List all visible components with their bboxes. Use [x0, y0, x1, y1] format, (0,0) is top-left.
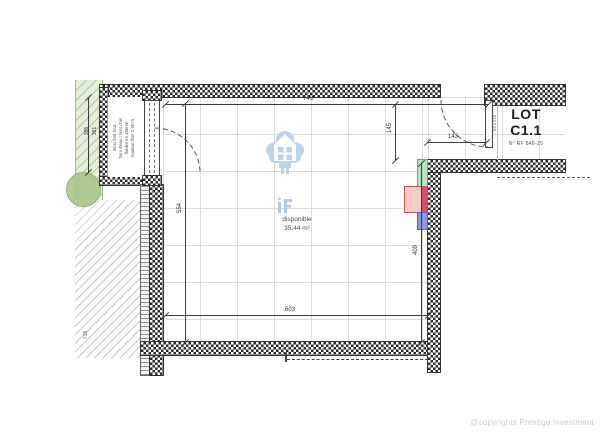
lot-title-line2: C1.1	[497, 122, 555, 138]
brand-monogram-icon	[276, 197, 294, 217]
wall-annex-left	[100, 88, 108, 185]
boundary-tick	[285, 352, 287, 362]
dim-line-door-opening	[427, 142, 486, 143]
annex-door-swing-arc	[152, 125, 207, 177]
dim-outer-left-b: 361	[92, 116, 98, 146]
lot-jamb-line	[497, 105, 498, 160]
lot-label-block: LOT C1.1 N° RF 848-25	[497, 106, 555, 147]
lot-boundary-dashed-line	[497, 177, 590, 178]
dim-line-entry-recess	[395, 104, 396, 160]
dim-line-bottom	[165, 315, 428, 316]
floor-plan-canvas: local livré brut hors d'eau / hors d'air…	[0, 0, 600, 433]
annex-door-jamb-top	[143, 91, 161, 100]
annex-note-line: hauteur libre 2,60 m	[130, 106, 136, 171]
annex-note: local livré brut hors d'eau / hors d'air…	[113, 106, 142, 171]
copyright-watermark: @copyrights Prestige Investment	[470, 418, 594, 427]
house-logo-watermark-icon	[265, 130, 305, 176]
lot-reference: N° RF 848-25	[497, 141, 555, 147]
dim-entry-recess: 145	[387, 118, 393, 138]
bush-symbol	[66, 172, 101, 207]
wall-bottom	[141, 342, 440, 355]
dim-door-opening: 143	[438, 134, 468, 140]
wall-entry-bottom	[428, 160, 565, 172]
door-panel-line	[149, 103, 150, 173]
dim-outer-left-a: 365	[84, 116, 90, 146]
dim-left-height: 554	[177, 198, 183, 218]
unit-area-label: 35,44 m²	[262, 225, 332, 233]
annex-door-jamb-bottom	[143, 176, 161, 185]
wall-right	[428, 160, 440, 372]
dim-top-width: 743	[288, 96, 328, 102]
boundary-dashed-line	[287, 359, 428, 360]
marker-blue-strip	[418, 213, 427, 229]
wall-top-right-pier	[485, 85, 565, 105]
dim-right-height: 409	[413, 240, 419, 260]
dim-line-right	[421, 163, 422, 342]
unit-status-label: disponible	[262, 216, 332, 224]
dim-line-top	[165, 104, 488, 105]
dim-line-left	[185, 103, 186, 342]
lot-title-line1: LOT	[497, 106, 555, 122]
dim-bottom-width: 603	[270, 307, 310, 313]
dim-outer-bottom: 718	[83, 323, 89, 347]
